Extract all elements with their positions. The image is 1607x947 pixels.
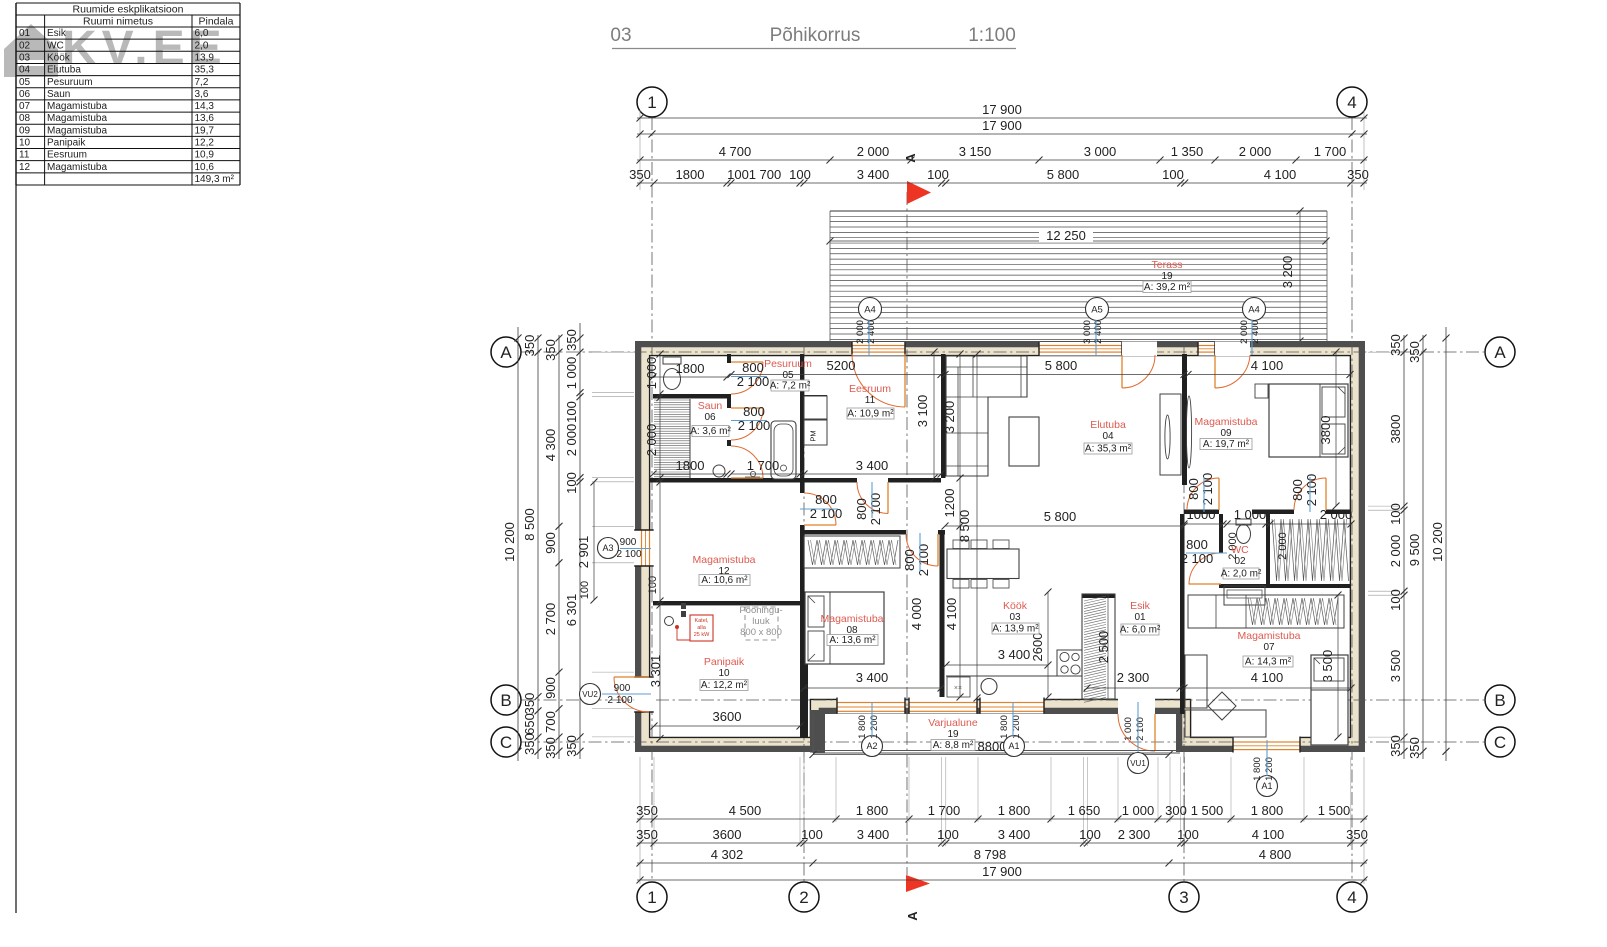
svg-text:100: 100	[801, 827, 823, 842]
svg-text:Terass: Terass	[1152, 259, 1183, 271]
svg-text:A: A	[1494, 343, 1506, 362]
svg-text:3 500: 3 500	[1388, 650, 1403, 683]
svg-text:1 200: 1 200	[869, 715, 880, 739]
svg-text:Katel,: Katel,	[694, 618, 709, 624]
svg-text:12 250: 12 250	[1046, 228, 1086, 243]
svg-text:01: 01	[1134, 612, 1146, 623]
svg-text:12: 12	[19, 162, 31, 173]
svg-text:100: 100	[937, 827, 959, 842]
svg-text:A: 14,3 m²: A: 14,3 m²	[1245, 657, 1292, 668]
svg-text:Pindala: Pindala	[198, 16, 233, 28]
svg-text:4 500: 4 500	[729, 803, 762, 818]
svg-text:3800: 3800	[1318, 416, 1333, 445]
svg-text:3 400: 3 400	[998, 647, 1031, 662]
svg-text:17 900: 17 900	[982, 102, 1022, 117]
svg-text:1800: 1800	[676, 167, 705, 182]
svg-text:100: 100	[1079, 827, 1101, 842]
svg-text:2 000: 2 000	[1388, 535, 1403, 568]
svg-text:100: 100	[1177, 827, 1199, 842]
svg-text:17 900: 17 900	[982, 864, 1022, 879]
svg-text:Magamistuba: Magamistuba	[1194, 416, 1257, 428]
svg-text:Esik: Esik	[47, 28, 67, 39]
svg-text:Magamistuba: Magamistuba	[47, 162, 107, 173]
svg-text:350: 350	[636, 827, 658, 842]
svg-text:2 500: 2 500	[1096, 631, 1111, 664]
svg-text:06: 06	[19, 89, 31, 100]
svg-text:2: 2	[799, 888, 808, 907]
svg-text:1 200: 1 200	[1264, 757, 1275, 781]
svg-text:2 000: 2 000	[855, 320, 866, 344]
svg-text:Pesuruum: Pesuruum	[47, 77, 93, 88]
svg-text:900: 900	[614, 683, 631, 694]
svg-text:2 100: 2 100	[616, 549, 641, 560]
svg-text:10: 10	[718, 668, 730, 679]
svg-text:350: 350	[522, 693, 537, 715]
svg-text:149,3 m²: 149,3 m²	[195, 174, 235, 185]
svg-text:3 400: 3 400	[998, 827, 1031, 842]
svg-text:10 200: 10 200	[502, 522, 517, 562]
svg-text:Panipaik: Panipaik	[704, 656, 745, 668]
svg-text:35,3: 35,3	[195, 65, 215, 76]
svg-text:××: ××	[954, 685, 962, 692]
svg-text:4 800: 4 800	[1259, 847, 1292, 862]
svg-text:07: 07	[1263, 642, 1275, 653]
svg-text:6 301: 6 301	[564, 594, 579, 627]
svg-text:800: 800	[742, 360, 764, 375]
svg-text:1 000: 1 000	[564, 357, 579, 390]
svg-text:A: 10,9 m²: A: 10,9 m²	[847, 409, 894, 420]
svg-text:A2: A2	[866, 741, 877, 751]
svg-text:4 100: 4 100	[944, 598, 959, 631]
svg-text:100: 100	[1388, 589, 1403, 611]
svg-text:800: 800	[743, 404, 765, 419]
svg-text:A: A	[905, 911, 920, 921]
svg-text:Ruumide eskplikatsioon: Ruumide eskplikatsioon	[73, 4, 184, 16]
svg-text:Magamistuba: Magamistuba	[820, 613, 883, 625]
svg-text:06: 06	[704, 412, 716, 423]
svg-text:1 700: 1 700	[749, 167, 782, 182]
svg-text:08: 08	[19, 113, 31, 124]
svg-text:3 400: 3 400	[857, 827, 890, 842]
svg-text:03: 03	[1009, 612, 1021, 623]
svg-text:3 100: 3 100	[915, 395, 930, 428]
svg-text:2 100: 2 100	[868, 493, 883, 526]
svg-text:4: 4	[1347, 888, 1356, 907]
svg-text:10: 10	[19, 138, 31, 149]
svg-text:1: 1	[647, 93, 656, 112]
svg-text:B: B	[500, 691, 511, 710]
svg-text:10,6: 10,6	[195, 162, 215, 173]
svg-text:1 800: 1 800	[1252, 757, 1263, 781]
svg-text:4 100: 4 100	[1251, 358, 1284, 373]
svg-text:Elutuba: Elutuba	[1090, 419, 1126, 431]
svg-text:1 800: 1 800	[1251, 803, 1284, 818]
svg-text:Magamistuba: Magamistuba	[1237, 630, 1300, 642]
svg-text:100: 100	[1388, 503, 1403, 525]
svg-text:Elutuba: Elutuba	[47, 65, 81, 76]
svg-text:2 700: 2 700	[543, 603, 558, 636]
svg-text:A3: A3	[602, 543, 613, 553]
svg-text:3 400: 3 400	[856, 670, 889, 685]
svg-text:2 000: 2 000	[644, 424, 659, 457]
svg-text:8 500: 8 500	[522, 508, 537, 541]
svg-text:1200: 1200	[942, 489, 957, 518]
svg-text:350: 350	[1388, 735, 1403, 757]
svg-text:350: 350	[1388, 334, 1403, 356]
svg-text:A4: A4	[1248, 304, 1260, 315]
svg-text:1 000: 1 000	[644, 357, 659, 390]
svg-text:4 700: 4 700	[719, 144, 752, 159]
svg-text:1 000: 1 000	[1123, 717, 1134, 741]
svg-text:3 500: 3 500	[1320, 650, 1335, 683]
svg-text:5 800: 5 800	[1047, 167, 1080, 182]
svg-text:VU2: VU2	[582, 690, 598, 699]
svg-text:4 100: 4 100	[1251, 670, 1284, 685]
svg-text:A1: A1	[1008, 741, 1019, 751]
svg-text:Põhikorrus: Põhikorrus	[770, 25, 861, 46]
svg-text:A: 12,2 m²: A: 12,2 m²	[701, 680, 748, 691]
svg-text:04: 04	[1102, 431, 1114, 442]
svg-text:3 200: 3 200	[1280, 256, 1295, 289]
svg-text:4 302: 4 302	[711, 847, 744, 862]
svg-text:14,3: 14,3	[195, 101, 215, 112]
svg-text:4 000: 4 000	[909, 598, 924, 631]
svg-text:4 100: 4 100	[1252, 827, 1285, 842]
svg-text:11: 11	[19, 150, 30, 161]
svg-text:12,2: 12,2	[195, 138, 215, 149]
svg-text:A: 19,7 m²: A: 19,7 m²	[1203, 439, 1250, 450]
svg-text:5 800: 5 800	[1045, 358, 1078, 373]
svg-text:350: 350	[522, 335, 537, 357]
svg-text:02: 02	[19, 40, 31, 51]
svg-text:07: 07	[19, 101, 31, 112]
svg-text:350: 350	[629, 167, 651, 182]
svg-text:1 350: 1 350	[1171, 144, 1204, 159]
svg-text:350: 350	[636, 803, 658, 818]
svg-text:13,9: 13,9	[195, 52, 215, 63]
svg-text:A: 6,0 m²: A: 6,0 m²	[1120, 625, 1161, 636]
svg-text:A: 8,8 m²: A: 8,8 m²	[933, 740, 974, 751]
svg-text:3 400: 3 400	[857, 167, 890, 182]
svg-text:2 000: 2 000	[1239, 144, 1272, 159]
svg-text:2 400: 2 400	[1093, 320, 1104, 344]
svg-text:10,9: 10,9	[195, 150, 215, 161]
svg-text:350: 350	[543, 339, 558, 361]
svg-text:800: 800	[902, 549, 917, 571]
svg-text:1800: 1800	[676, 458, 705, 473]
svg-text:Ruumi nimetus: Ruumi nimetus	[83, 16, 153, 28]
svg-text:2 000: 2 000	[1239, 320, 1250, 344]
svg-text:900: 900	[620, 537, 637, 548]
svg-text:A: A	[500, 343, 512, 362]
svg-text:2 100: 2 100	[810, 506, 843, 521]
svg-text:3 301: 3 301	[648, 655, 663, 688]
svg-text:1: 1	[647, 888, 656, 907]
svg-text:Esik: Esik	[1130, 600, 1151, 612]
svg-text:B: B	[1494, 691, 1505, 710]
svg-text:3 150: 3 150	[959, 144, 992, 159]
svg-text:2 400: 2 400	[866, 320, 877, 344]
svg-text:3800: 3800	[1388, 415, 1403, 444]
svg-text:03: 03	[19, 52, 31, 63]
svg-text:Pööningu-: Pööningu-	[739, 605, 782, 616]
svg-text:100: 100	[727, 167, 749, 182]
svg-text:2600: 2600	[1030, 633, 1045, 662]
svg-text:Panipaik: Panipaik	[47, 138, 86, 149]
svg-text:Magamistuba: Magamistuba	[47, 113, 107, 124]
svg-text:350: 350	[1407, 737, 1422, 759]
svg-text:10 200: 10 200	[1430, 522, 1445, 562]
svg-text:A: 7,2 m²: A: 7,2 m²	[770, 381, 811, 392]
svg-text:2 100: 2 100	[1304, 474, 1319, 507]
svg-text:800: 800	[1290, 479, 1305, 501]
svg-text:9 500: 9 500	[1407, 534, 1422, 567]
svg-text:3: 3	[1179, 888, 1188, 907]
svg-text:1 000: 1 000	[1234, 507, 1267, 522]
svg-text:02: 02	[1234, 556, 1246, 567]
svg-text:7,2: 7,2	[195, 77, 209, 88]
svg-text:350: 350	[564, 735, 579, 757]
svg-text:03: 03	[610, 25, 631, 46]
svg-text:2 100: 2 100	[1135, 717, 1146, 741]
svg-text:5200: 5200	[827, 358, 856, 373]
svg-text:alla: alla	[697, 625, 707, 631]
svg-text:1 700: 1 700	[747, 458, 780, 473]
svg-text:A: 2,0 m²: A: 2,0 m²	[1221, 569, 1262, 580]
svg-text:3 200: 3 200	[942, 401, 957, 434]
svg-text:3600: 3600	[713, 827, 742, 842]
svg-text:19,7: 19,7	[195, 125, 215, 136]
svg-text:Köök: Köök	[1003, 600, 1028, 612]
svg-text:Magamistuba: Magamistuba	[47, 101, 107, 112]
svg-text:1:100: 1:100	[968, 25, 1016, 46]
svg-text:100: 100	[1162, 167, 1184, 182]
svg-text:17 900: 17 900	[982, 118, 1022, 133]
svg-text:Varjualune: Varjualune	[928, 717, 978, 729]
svg-text:1 800: 1 800	[856, 803, 889, 818]
svg-text:PM: PM	[809, 430, 818, 441]
svg-text:2 100: 2 100	[916, 544, 931, 577]
svg-text:1 800: 1 800	[857, 715, 868, 739]
svg-text:2,0: 2,0	[195, 40, 209, 51]
svg-text:A: 13,9 m²: A: 13,9 m²	[992, 624, 1039, 635]
svg-text:1 500: 1 500	[1318, 803, 1351, 818]
svg-text:100: 100	[647, 576, 659, 594]
svg-text:100: 100	[789, 167, 811, 182]
svg-text:2 000: 2 000	[857, 144, 890, 159]
svg-text:A: 10,6 m²: A: 10,6 m²	[701, 575, 748, 586]
svg-text:1 000: 1 000	[1122, 803, 1155, 818]
svg-text:2 901: 2 901	[576, 536, 591, 569]
svg-text:800: 800	[1186, 478, 1201, 500]
svg-text:350: 350	[1346, 827, 1368, 842]
svg-text:1 800: 1 800	[998, 803, 1031, 818]
svg-text:2 100: 2 100	[1200, 473, 1215, 506]
svg-text:01: 01	[19, 28, 31, 39]
svg-text:Pesuruum: Pesuruum	[764, 358, 812, 370]
svg-text:3 000: 3 000	[1082, 320, 1093, 344]
svg-text:2 300: 2 300	[1117, 670, 1150, 685]
svg-text:350: 350	[1407, 341, 1422, 363]
svg-text:100: 100	[564, 401, 579, 423]
svg-text:1800: 1800	[676, 361, 705, 376]
svg-text:1 700: 1 700	[928, 803, 961, 818]
svg-text:700: 700	[543, 711, 558, 733]
svg-text:800: 800	[1186, 537, 1208, 552]
svg-text:800: 800	[815, 492, 837, 507]
svg-text:5 800: 5 800	[1044, 509, 1077, 524]
svg-text:350: 350	[543, 737, 558, 759]
svg-text:Saun: Saun	[698, 400, 723, 412]
svg-text:11: 11	[865, 395, 876, 406]
svg-text:A1: A1	[1261, 781, 1272, 791]
svg-text:WC: WC	[1231, 544, 1249, 556]
svg-text:900: 900	[543, 532, 558, 554]
svg-text:A: 39,2 m²: A: 39,2 m²	[1144, 282, 1191, 293]
svg-text:Köök: Köök	[47, 52, 71, 63]
svg-text:luuk: luuk	[752, 616, 770, 627]
svg-text:4 300: 4 300	[543, 429, 558, 462]
svg-text:VU1: VU1	[1130, 759, 1146, 768]
svg-text:2 100: 2 100	[607, 695, 632, 706]
svg-text:800 x 800: 800 x 800	[740, 627, 782, 638]
svg-text:3 000: 3 000	[1084, 144, 1117, 159]
svg-text:800: 800	[854, 498, 869, 520]
svg-text:350: 350	[564, 329, 579, 351]
svg-text:350: 350	[1347, 167, 1369, 182]
svg-text:25 kW: 25 kW	[694, 632, 710, 638]
svg-text:2 000: 2 000	[1320, 507, 1353, 522]
svg-text:100: 100	[927, 167, 949, 182]
svg-text:Magamistuba: Magamistuba	[692, 554, 755, 566]
svg-text:A: 13,6 m²: A: 13,6 m²	[829, 635, 876, 646]
svg-text:1 500: 1 500	[1191, 803, 1224, 818]
svg-text:19: 19	[1161, 271, 1173, 282]
svg-text:Eesruum: Eesruum	[47, 150, 87, 161]
svg-text:1 650: 1 650	[1068, 803, 1101, 818]
svg-text:05: 05	[19, 77, 31, 88]
svg-text:3600: 3600	[713, 709, 742, 724]
svg-text:19: 19	[947, 729, 959, 740]
svg-text:A: 3,6 m²: A: 3,6 m²	[690, 426, 731, 437]
svg-text:WC: WC	[47, 40, 64, 51]
svg-text:100: 100	[579, 581, 591, 599]
svg-text:2 000: 2 000	[1277, 532, 1289, 560]
svg-text:05: 05	[782, 370, 794, 381]
svg-text:2 000: 2 000	[564, 424, 579, 457]
svg-text:3,6: 3,6	[195, 89, 209, 100]
svg-text:100: 100	[564, 472, 579, 494]
svg-text:04: 04	[19, 65, 31, 76]
svg-text:1000: 1000	[1187, 507, 1216, 522]
svg-text:A: 35,3 m²: A: 35,3 m²	[1085, 444, 1132, 455]
svg-text:1 700: 1 700	[1314, 144, 1347, 159]
svg-text:C: C	[500, 733, 512, 752]
svg-text:650: 650	[522, 713, 537, 735]
svg-text:3 400: 3 400	[856, 458, 889, 473]
svg-text:300: 300	[1165, 803, 1187, 818]
svg-text:13,6: 13,6	[195, 113, 215, 124]
svg-text:2 300: 2 300	[1118, 827, 1151, 842]
svg-text:A4: A4	[864, 304, 876, 315]
svg-text:4: 4	[1347, 93, 1356, 112]
svg-text:8 798: 8 798	[974, 847, 1007, 862]
svg-text:900: 900	[543, 677, 558, 699]
svg-text:4 100: 4 100	[1264, 167, 1297, 182]
svg-text:C: C	[1494, 733, 1506, 752]
svg-text:A5: A5	[1091, 304, 1103, 315]
svg-text:09: 09	[19, 125, 31, 136]
svg-text:Eesruum: Eesruum	[849, 383, 891, 395]
svg-text:8800: 8800	[978, 739, 1007, 754]
svg-text:6,0: 6,0	[195, 28, 209, 39]
svg-text:09: 09	[1220, 428, 1232, 439]
svg-text:Magamistuba: Magamistuba	[47, 125, 107, 136]
svg-text:350: 350	[522, 733, 537, 755]
svg-text:1 800: 1 800	[999, 715, 1010, 739]
svg-text:Saun: Saun	[47, 89, 70, 100]
